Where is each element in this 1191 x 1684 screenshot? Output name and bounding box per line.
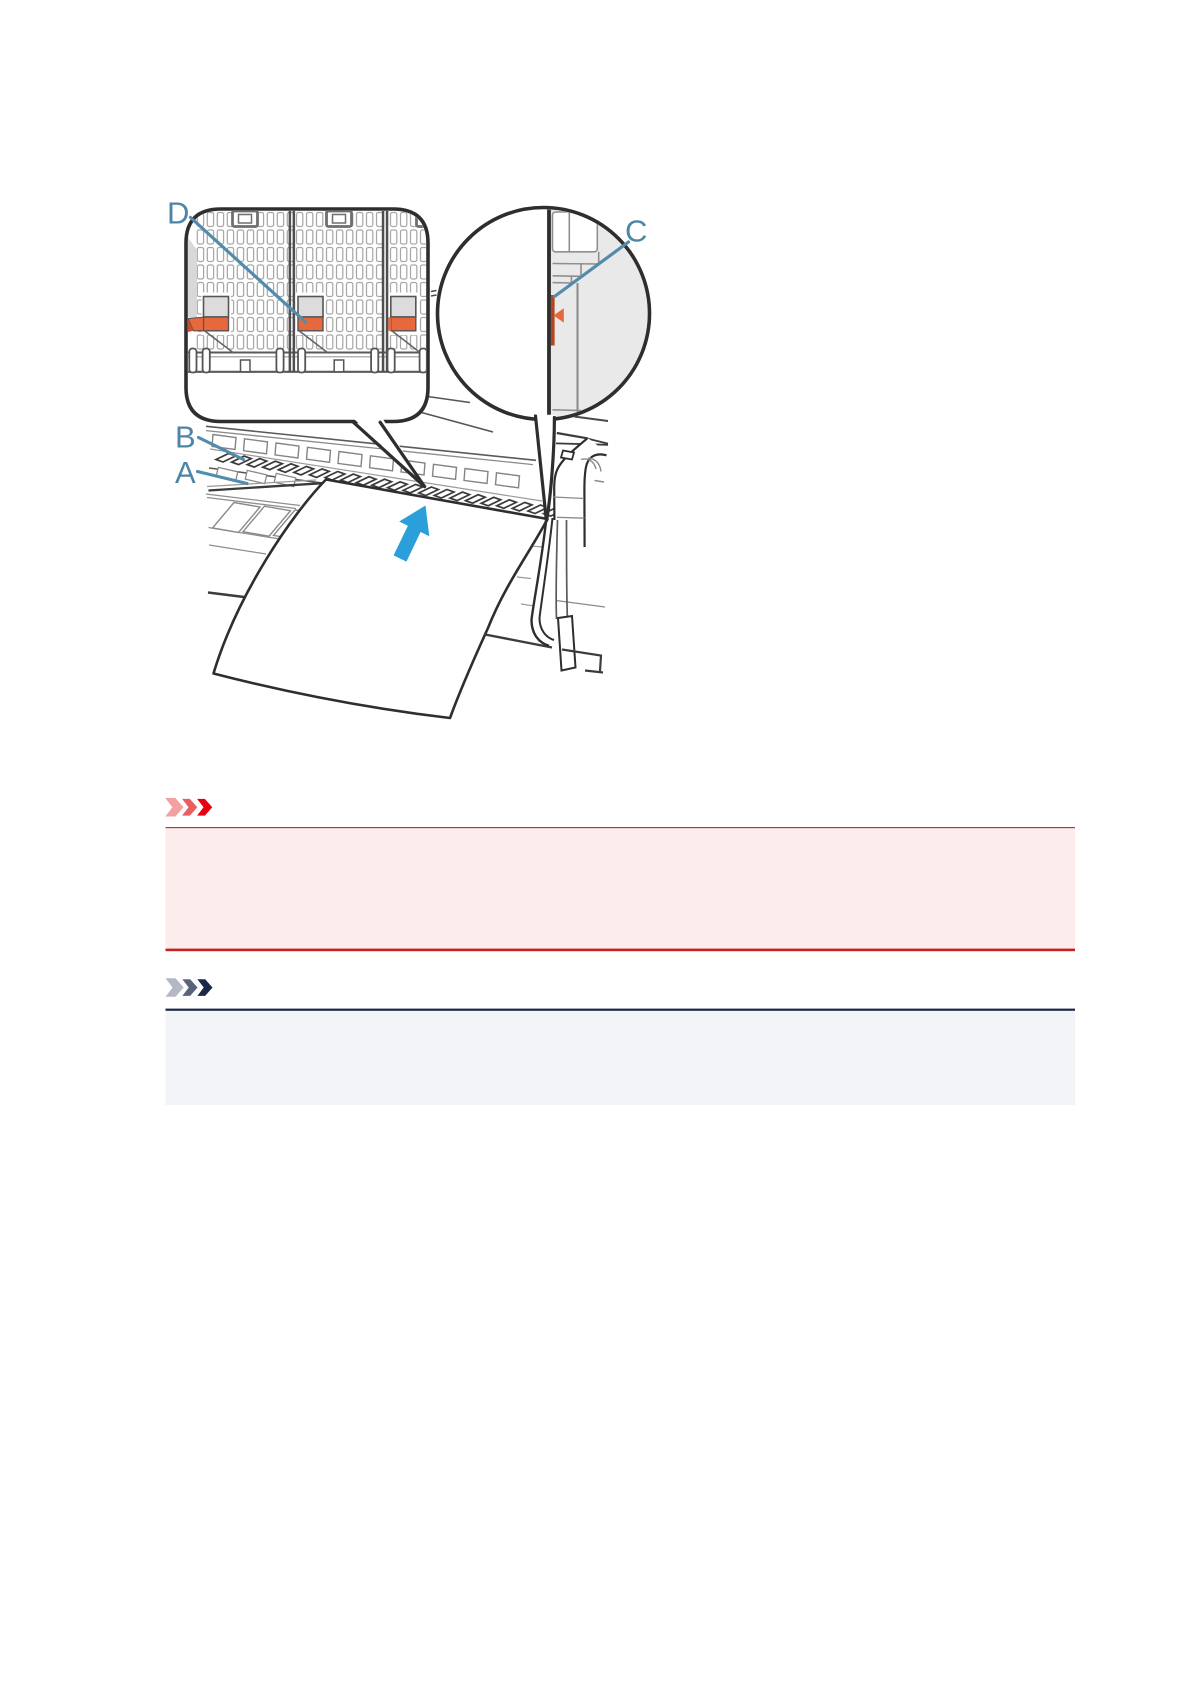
svg-text:D: D [167, 196, 189, 231]
svg-text:C: C [625, 214, 647, 249]
svg-text:A: A [175, 455, 196, 490]
svg-text:B: B [175, 420, 196, 455]
